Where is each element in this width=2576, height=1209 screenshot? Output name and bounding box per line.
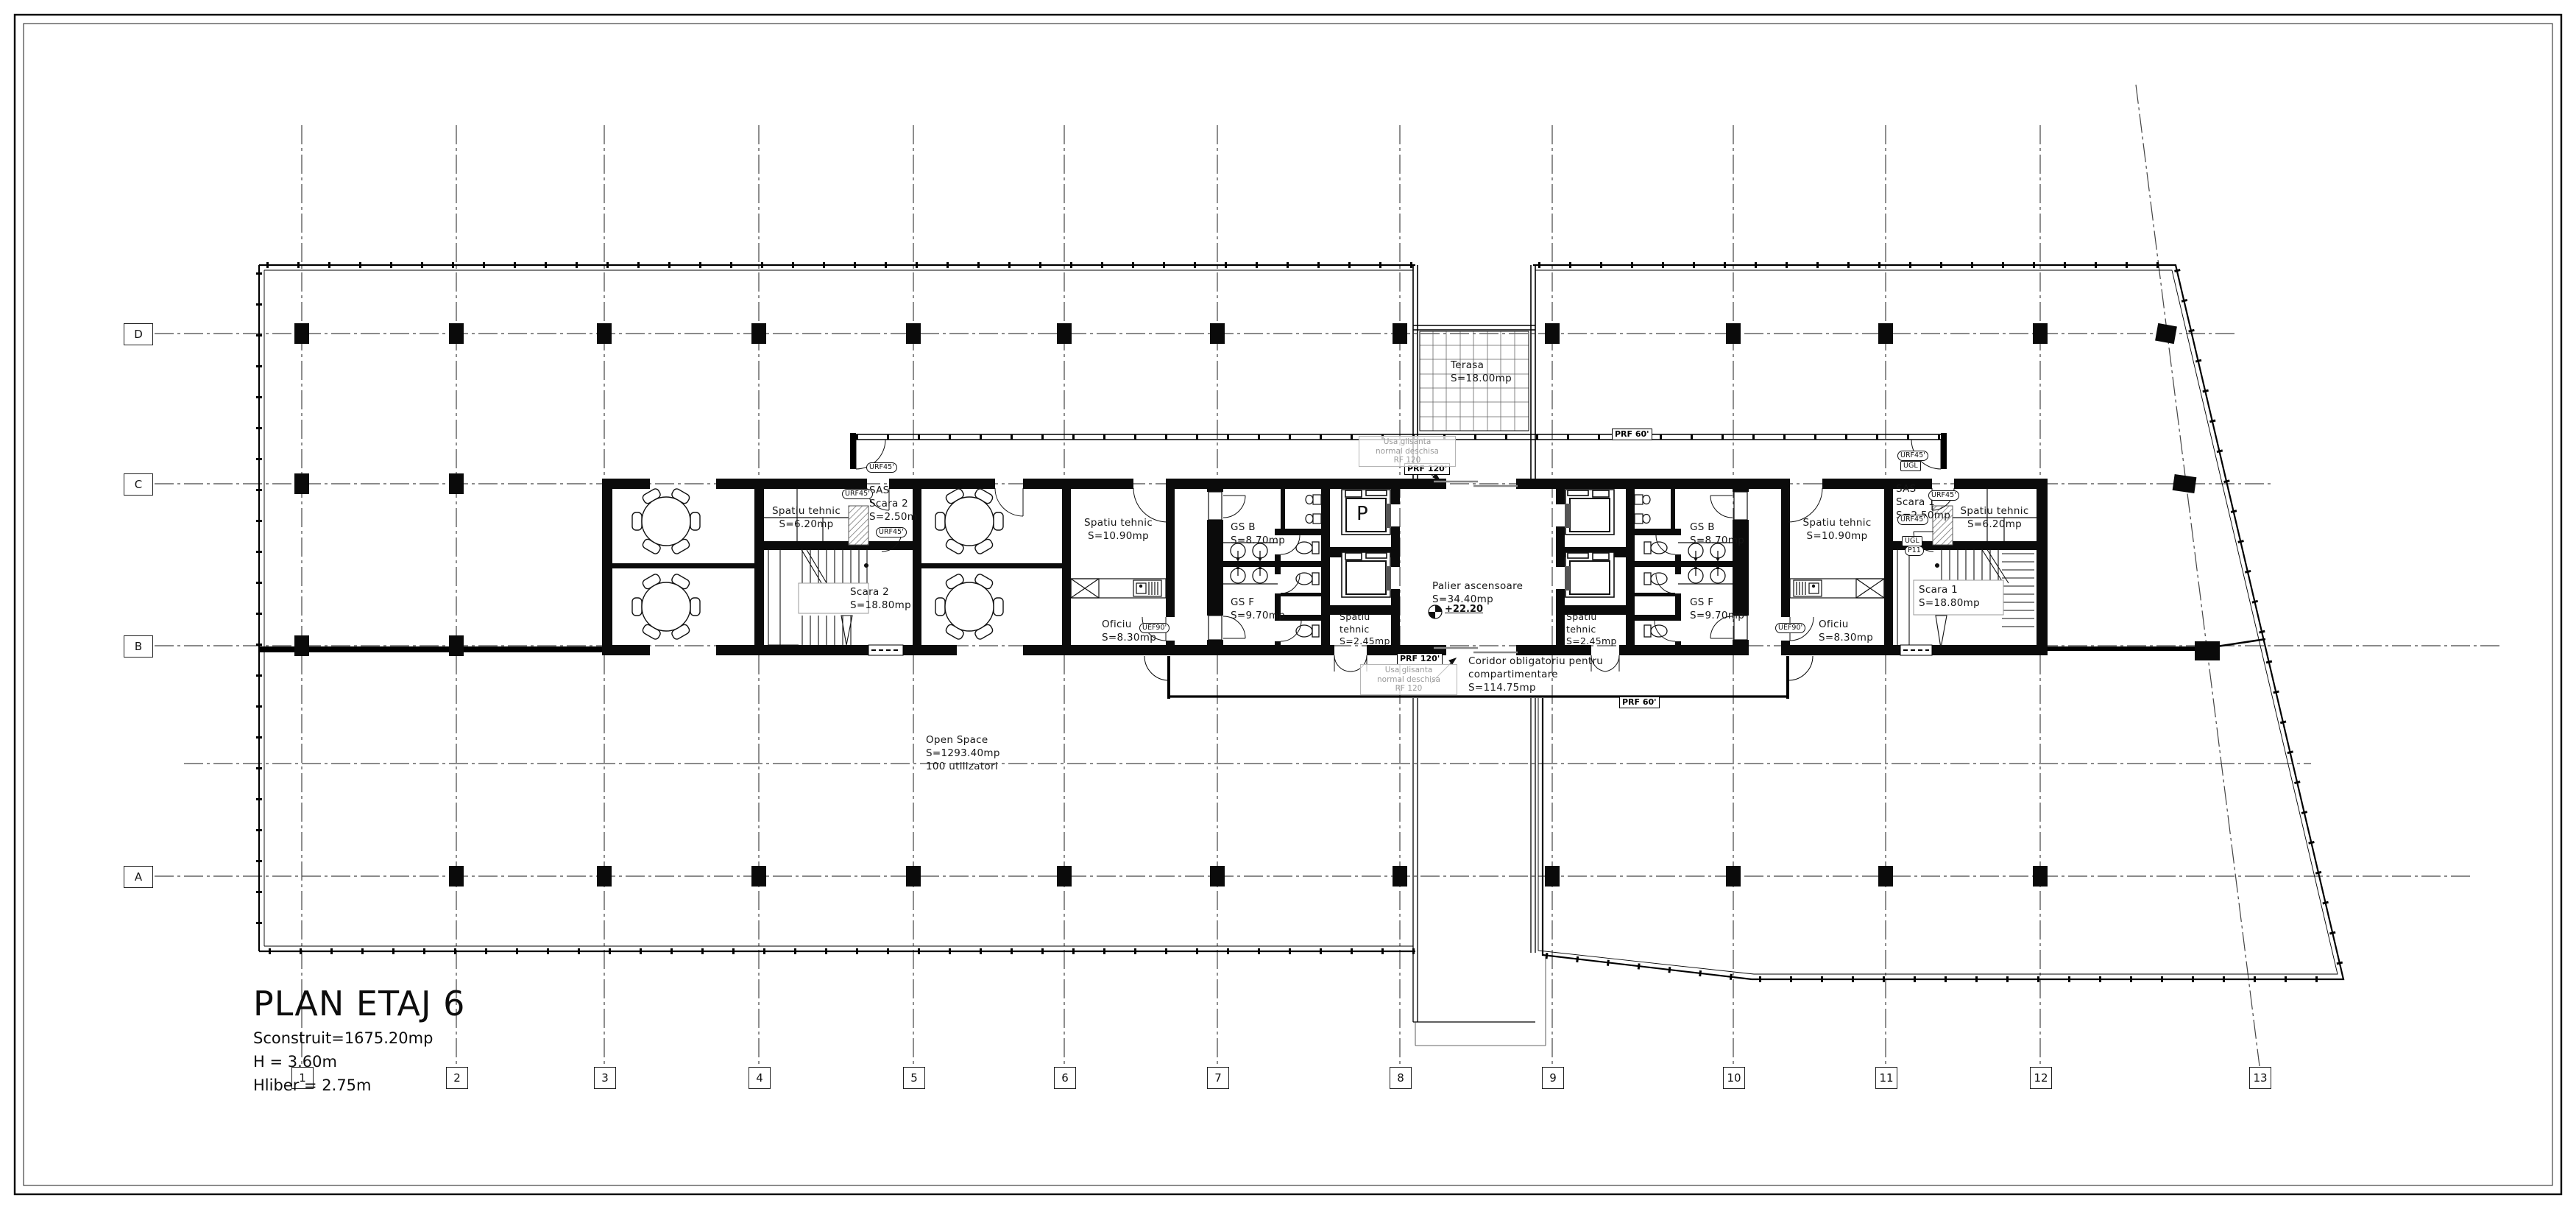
grid-col-bubble-7: 7 [1207,1067,1229,1089]
door-tag-urf45: URF45' [876,527,907,537]
stat-clear-height: Hliber = 2.75m [253,1076,372,1094]
stat-built-area: Sconstruit=1675.20mp [253,1029,433,1047]
room-label-spatiu-tehnic-245-left: SpatiutehnicS=2.45mp [1340,611,1390,648]
grid-row-bubble-c: C [124,473,153,496]
room-label-scara-2: Scara 2S=18.80mp [850,586,911,613]
grid-col-bubble-3: 3 [594,1067,616,1089]
lightwell-strip [1413,698,1546,1046]
sliding-door-note-bottom: Usa glisantanormal deschisaRF 120 [1360,664,1457,695]
level-marker [1429,605,1442,618]
room-label-terasa: TerasaS=18.00mp [1451,359,1512,386]
grid-col-bubble-13: 13 [2249,1067,2271,1089]
door-tag-uef90: UEF90' [1775,623,1805,633]
door-tag-ugl: UGL [1902,536,1922,546]
sas2-hatched-wall [849,506,868,545]
room-label-open-space: Open SpaceS=1293.40mp100 utilizatori [926,734,1000,773]
grid-col-bubble-2: 2 [446,1067,468,1089]
room-label-oficiu-right: OficiuS=8.30mp [1819,618,1873,645]
room-label-gs-f-right: GS FS=9.70mp [1690,596,1744,623]
room-label-gs-f-left: GS FS=9.70mp [1231,596,1285,623]
grid-col-bubble-5: 5 [903,1067,925,1089]
door-tag-uef90: UEF90' [1139,623,1170,633]
sliding-door-note-top: Usa glisantanormal deschisaRF 120 [1359,436,1456,467]
room-label-coridor: Coridor obligatoriu pentrucompartimentar… [1468,655,1603,694]
grid-col-bubble-6: 6 [1054,1067,1076,1089]
room-label-spatiu-tehnic-245-right: SpatiutehnicS=2.45mp [1566,611,1617,648]
door-tag-urf45: URF45' [1897,451,1928,461]
grid-row-bubble-b: B [124,635,153,658]
grid-col-bubble-11: 11 [1875,1067,1897,1089]
grid-col-bubble-10: 10 [1723,1067,1745,1089]
wall-tag-prf60: PRF 60' [1612,429,1652,440]
room-label-palier: Palier ascensoareS=34.40mp [1432,580,1523,607]
door-tag-urf45: URF45' [1928,490,1959,501]
grid-col-bubble-9: 9 [1542,1067,1564,1089]
room-label-scara-1: Scara 1S=18.80mp [1919,584,1980,610]
wall-tag-prf60: PRF 60' [1619,697,1660,708]
door-tag-urf45: URF45' [866,462,897,473]
room-label-spatiu-tehnic-620-right: Spatiu tehnicS=6.20mp [1953,505,2037,532]
doors [867,482,1954,672]
grid-col-bubble-4: 4 [749,1067,771,1089]
door-tag-urf45: URF45' [1897,515,1928,525]
room-label-sas-scara-2: SASScara 2S=2.50m [869,484,917,524]
room-label-spatiu-tehnic-620-left: Spatiu tehnicS=6.20mp [764,505,849,532]
grid-row-bubble-d: D [124,323,153,345]
floor-plan-drawing [0,0,2576,1209]
room-label-spatiu-tehnic-1090-right: Spatiu tehnicS=10.90mp [1790,517,1884,543]
door-tag-ugl: UGL [1900,461,1921,471]
grid-col-bubble-12: 12 [2030,1067,2052,1089]
grid-row-bubble-a: A [124,866,153,888]
grid-col-bubble-8: 8 [1390,1067,1412,1089]
door-tag-p11: P11 [1905,546,1924,556]
drawing-sheet: Spatiu tehnicS=6.20mp SASScara 2S=2.50m … [0,0,2576,1209]
level-value: +22.20 [1445,604,1483,615]
page-title: PLAN ETAJ 6 [253,984,465,1023]
door-tag-urf45: URF45' [842,489,873,499]
elevator-p-label: P [1356,503,1368,525]
room-label-gs-b-right: GS BS=8.70mp [1690,521,1744,548]
wall-tag-prf120: PRF 120' [1397,653,1443,665]
room-label-spatiu-tehnic-1090-left: Spatiu tehnicS=10.90mp [1071,517,1166,543]
room-label-gs-b-left: GS BS=8.70mp [1231,521,1285,548]
stat-height: H = 3.60m [253,1053,337,1071]
